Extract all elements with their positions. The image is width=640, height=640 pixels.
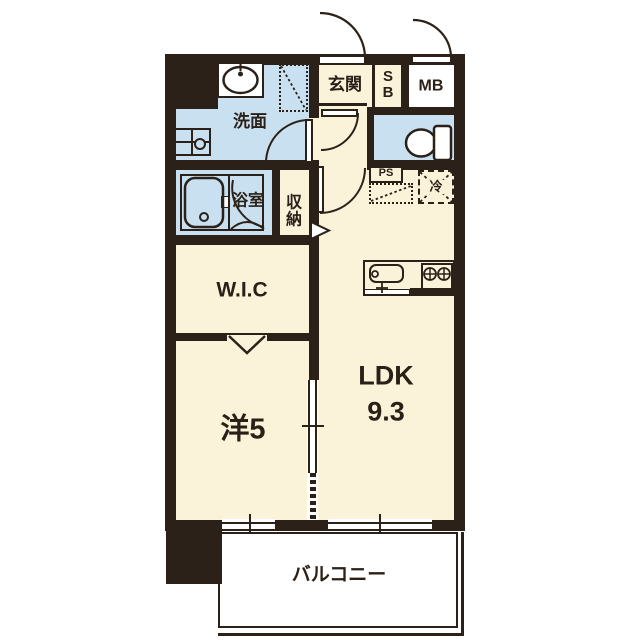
label-storage-1: 収 bbox=[286, 195, 302, 212]
label-storage: 収 納 bbox=[286, 195, 302, 230]
label-ldk-name: LDK bbox=[358, 358, 414, 394]
wall-bathroom-storage bbox=[272, 170, 280, 235]
washroom-upper-cabinet bbox=[279, 64, 308, 112]
label-pipe-space: PS bbox=[379, 168, 394, 180]
label-western-room: 洋5 bbox=[220, 414, 265, 445]
entrance-step-line bbox=[319, 103, 367, 106]
wall-left bbox=[165, 54, 176, 531]
label-shoebox: S B bbox=[383, 69, 394, 101]
label-ldk-size: 9.3 bbox=[358, 394, 414, 430]
ldk-door-leaf bbox=[317, 166, 324, 213]
wall-storage-wic bbox=[176, 235, 319, 245]
counter-edge-white bbox=[364, 289, 410, 295]
label-washroom: 洗面 bbox=[233, 113, 267, 131]
sliding-door-panel-hatch bbox=[310, 473, 316, 520]
label-bathroom: 浴室 bbox=[232, 192, 264, 209]
label-shoebox-b: B bbox=[383, 85, 394, 101]
wall-washroom-bathroom bbox=[176, 160, 319, 170]
meter-box-door-arc bbox=[413, 20, 451, 57]
label-storage-2: 納 bbox=[286, 212, 302, 229]
washer-pan bbox=[173, 128, 211, 156]
sliding-door-tick bbox=[302, 425, 324, 427]
wall-wic-bedroom-right bbox=[267, 333, 318, 341]
balcony-wall-block bbox=[166, 530, 222, 584]
vanity-sink-unit bbox=[217, 62, 264, 98]
wall-toilet-top bbox=[367, 107, 465, 115]
label-ldk: LDK 9.3 bbox=[358, 358, 414, 429]
kitchen-sink bbox=[369, 264, 404, 283]
wall-entrance-shoebox bbox=[372, 65, 375, 107]
wall-corner-block bbox=[166, 63, 218, 109]
entrance-door-arc bbox=[320, 13, 365, 57]
room-toilet bbox=[374, 115, 454, 160]
floor-plan: 玄関 S B MB 洗面 浴室 収 納 PS 冷 W.I.C 洋5 LDK 9.… bbox=[0, 0, 640, 640]
wall-right bbox=[454, 54, 465, 531]
counter-space bbox=[369, 183, 413, 204]
balcony-outer-line-bottom bbox=[218, 633, 464, 636]
balcony-outer-line-right bbox=[461, 532, 464, 636]
hall-door-leaf bbox=[321, 109, 358, 117]
bath-door-handle bbox=[221, 196, 230, 208]
wall-wic-bedroom-left bbox=[176, 333, 227, 341]
label-shoebox-s: S bbox=[383, 69, 394, 85]
label-entrance: 玄関 bbox=[328, 76, 362, 94]
wall-toilet-left bbox=[367, 115, 374, 160]
stove bbox=[421, 263, 453, 290]
entrance-door-leaf bbox=[318, 55, 366, 65]
wall-shoebox-meterbox bbox=[401, 54, 409, 115]
wic-opening-edge bbox=[227, 333, 267, 335]
label-refrigerator: 冷 bbox=[427, 180, 444, 194]
label-wic: W.I.C bbox=[216, 280, 267, 303]
label-balcony: バルコニー bbox=[292, 566, 387, 587]
washroom-door-leaf bbox=[305, 119, 313, 163]
meter-box-door-leaf bbox=[411, 55, 452, 64]
label-meter-box: MB bbox=[419, 77, 444, 94]
counter-edge-dark bbox=[410, 288, 455, 296]
